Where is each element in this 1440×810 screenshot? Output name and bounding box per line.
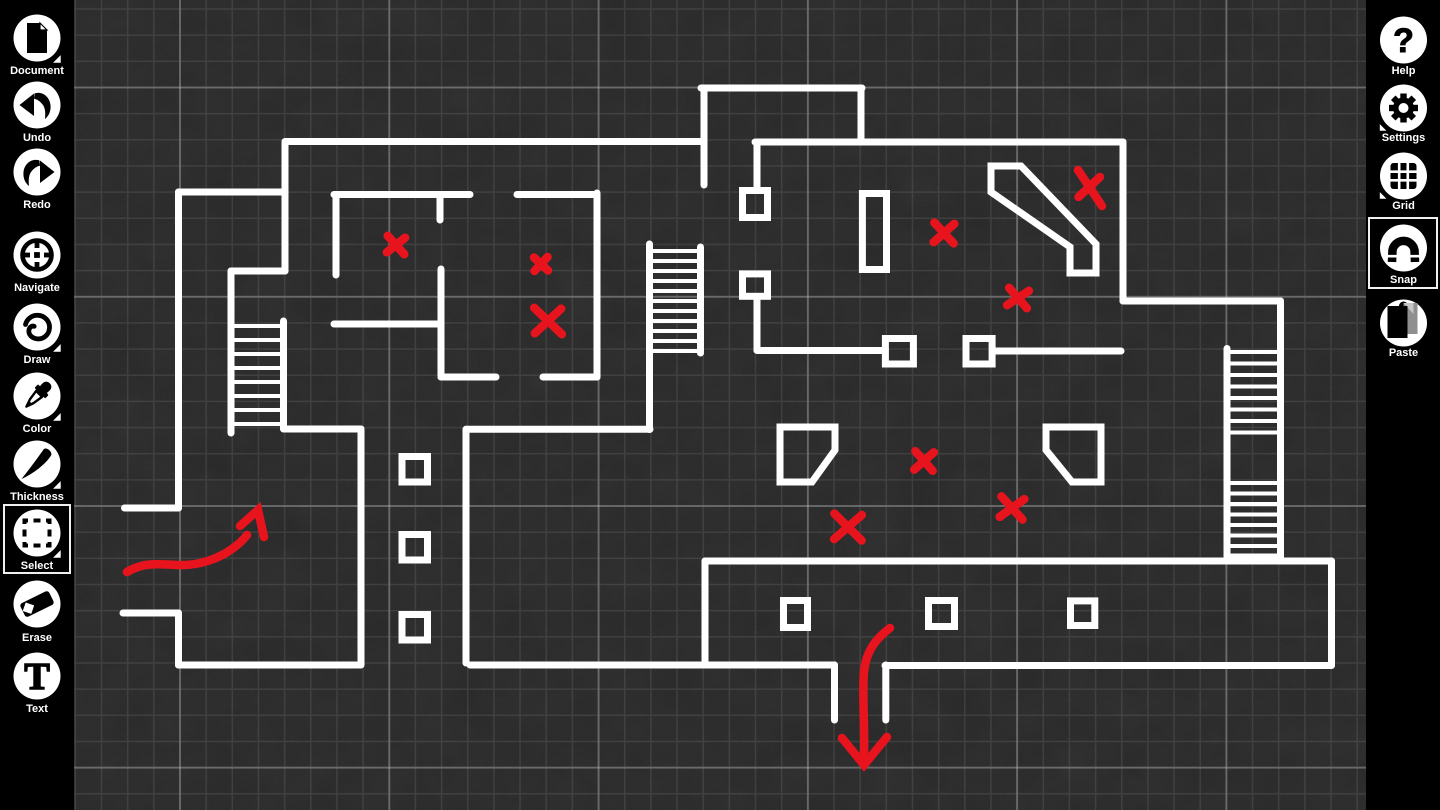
- svg-text:Text: Text: [26, 703, 48, 715]
- svg-text:Document: Document: [10, 65, 64, 77]
- svg-text:Select: Select: [21, 560, 54, 572]
- svg-text:Settings: Settings: [1382, 132, 1425, 144]
- svg-text:Help: Help: [1392, 65, 1416, 77]
- svg-text:Paste: Paste: [1389, 347, 1418, 359]
- svg-text:Thickness: Thickness: [10, 491, 64, 503]
- svg-text:Snap: Snap: [1390, 274, 1417, 286]
- svg-text:Undo: Undo: [23, 132, 51, 144]
- svg-text:Redo: Redo: [23, 199, 51, 211]
- svg-text:Erase: Erase: [22, 632, 52, 644]
- svg-text:Grid: Grid: [1392, 200, 1415, 212]
- svg-text:Color: Color: [23, 423, 52, 435]
- svg-text:Navigate: Navigate: [14, 282, 60, 294]
- svg-text:Draw: Draw: [24, 354, 51, 366]
- svg-text:?: ?: [1393, 22, 1414, 60]
- svg-text:T: T: [24, 656, 49, 698]
